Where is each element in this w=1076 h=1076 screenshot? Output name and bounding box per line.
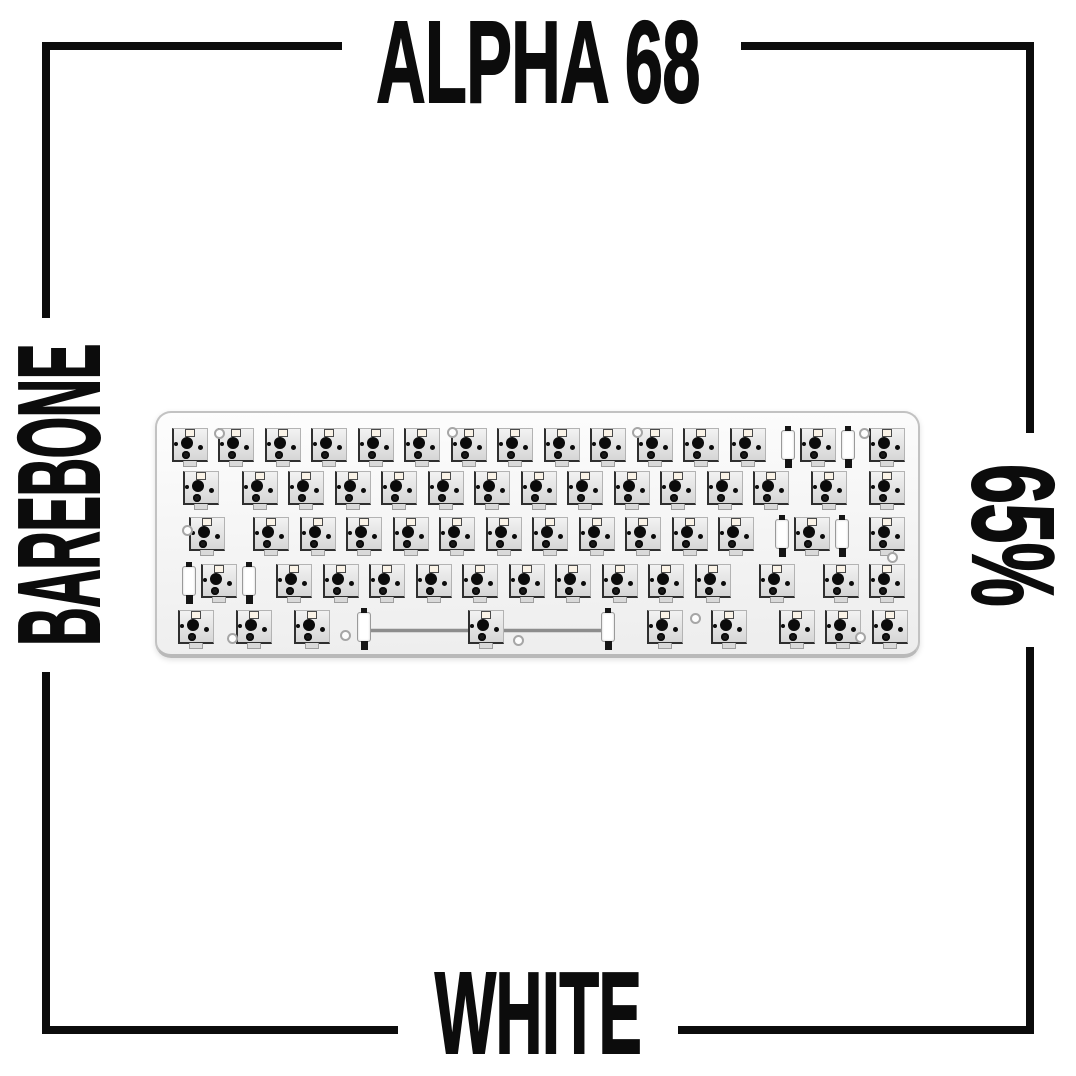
switch-socket [294, 610, 330, 644]
pin-hole [721, 581, 726, 586]
switch-stem-hole [344, 480, 356, 492]
pin-hole [720, 531, 724, 535]
switch-socket [462, 564, 498, 598]
switch-stem-hole [460, 437, 472, 449]
hotswap-socket-hole [519, 587, 527, 595]
hotswap-socket-hole [496, 540, 504, 548]
switch-socket [779, 610, 815, 644]
hotswap-socket-hole [833, 587, 841, 595]
switch-socket [189, 517, 225, 551]
pin-hole [592, 442, 596, 446]
pin-hole [238, 624, 242, 628]
switch-stem-hole [739, 437, 751, 449]
hotswap-socket-hole [657, 633, 665, 641]
hotswap-socket-hole [882, 633, 890, 641]
led-window [627, 472, 637, 480]
pin-hole [500, 488, 505, 493]
switch-stem-hole [692, 437, 704, 449]
switch-socket [823, 564, 859, 598]
switch-stem-hole [599, 437, 611, 449]
pin-hole [337, 485, 341, 489]
led-window [255, 472, 265, 480]
pin-hole [430, 445, 435, 450]
pin-hole [499, 442, 503, 446]
led-window [708, 565, 718, 573]
pin-hole [262, 627, 267, 632]
pin-hole [662, 485, 666, 489]
switch-socket [300, 517, 336, 551]
pin-hole [198, 445, 203, 450]
hotswap-socket-hole [565, 587, 573, 595]
switch-stem-hole [483, 480, 495, 492]
led-window [324, 429, 334, 437]
pin-hole [837, 488, 842, 493]
hotswap-socket-hole [789, 633, 797, 641]
pin-hole [244, 485, 248, 489]
switch-stem-hole [303, 619, 315, 631]
frame-line-left-lower [42, 672, 50, 1034]
switch-socket [869, 428, 905, 462]
switch-stem-hole [657, 573, 669, 585]
stabilizer-clip [242, 566, 256, 596]
led-window [766, 472, 776, 480]
pin-hole [871, 531, 875, 535]
switch-socket [346, 517, 382, 551]
hotswap-socket-hole [717, 494, 725, 502]
led-window [838, 611, 848, 619]
switch-stem-hole [623, 480, 635, 492]
led-window [638, 518, 648, 526]
led-window [772, 565, 782, 573]
switch-socket [236, 610, 272, 644]
hotswap-socket-hole [531, 494, 539, 502]
pin-hole [494, 627, 499, 632]
switch-socket [648, 564, 684, 598]
pin-hole [761, 578, 765, 582]
pin-hole [663, 445, 668, 450]
led-window [429, 565, 439, 573]
pin-hole [547, 488, 552, 493]
pin-hole [204, 627, 209, 632]
pin-hole [406, 442, 410, 446]
pin-hole [407, 488, 412, 493]
pin-hole [279, 534, 284, 539]
led-window [603, 429, 613, 437]
pin-hole [337, 445, 342, 450]
hotswap-socket-hole [461, 451, 469, 459]
product-poster: ALPHA 68 BAREBONE 65% WHITE [0, 0, 1076, 1076]
switch-socket [276, 564, 312, 598]
pin-hole [826, 445, 831, 450]
switch-socket [811, 471, 847, 505]
hotswap-socket-hole [182, 451, 190, 459]
pin-hole [534, 531, 538, 535]
led-window [441, 472, 451, 480]
led-window [743, 429, 753, 437]
led-window [196, 472, 206, 480]
pin-hole [535, 581, 540, 586]
switch-stem-hole [832, 573, 844, 585]
switch-socket [647, 610, 683, 644]
pin-hole [755, 485, 759, 489]
switch-socket [602, 564, 638, 598]
switch-socket [625, 517, 661, 551]
pin-hole [827, 624, 831, 628]
switch-stem-hole [541, 526, 553, 538]
pin-hole [874, 624, 878, 628]
pin-hole [383, 485, 387, 489]
hotswap-socket-hole [426, 587, 434, 595]
switch-stem-hole [425, 573, 437, 585]
pin-hole [871, 578, 875, 582]
pin-hole [244, 445, 249, 450]
pin-hole [627, 531, 631, 535]
switch-socket [869, 517, 905, 551]
pin-hole [604, 578, 608, 582]
led-window [813, 429, 823, 437]
hotswap-socket-hole [600, 451, 608, 459]
pin-hole [849, 581, 854, 586]
switch-socket [439, 517, 475, 551]
pin-hole [278, 578, 282, 582]
switch-stem-hole [669, 480, 681, 492]
hotswap-socket-hole [763, 494, 771, 502]
pin-hole [268, 488, 273, 493]
switch-socket [567, 471, 603, 505]
led-window [214, 565, 224, 573]
pin-hole [546, 442, 550, 446]
led-window [289, 565, 299, 573]
led-window [510, 429, 520, 437]
switch-stem-hole [320, 437, 332, 449]
switch-stem-hole [181, 437, 193, 449]
switch-socket [323, 564, 359, 598]
pin-hole [813, 485, 817, 489]
pin-hole [313, 442, 317, 446]
hotswap-socket-hole [728, 540, 736, 548]
hotswap-socket-hole [246, 633, 254, 641]
frame-line-bottom-right [678, 1026, 1034, 1034]
switch-stem-hole [210, 573, 222, 585]
switch-stem-hole [245, 619, 257, 631]
switch-stem-hole [297, 480, 309, 492]
switch-socket [242, 471, 278, 505]
pin-hole [372, 534, 377, 539]
led-window [394, 472, 404, 480]
switch-stem-hole [881, 619, 893, 631]
led-window [696, 429, 706, 437]
hotswap-socket-hole [647, 451, 655, 459]
pin-hole [581, 581, 586, 586]
screw-hole [447, 427, 458, 438]
switch-socket [369, 564, 405, 598]
pin-hole [488, 581, 493, 586]
pin-hole [384, 445, 389, 450]
switch-socket [718, 517, 754, 551]
switch-stem-hole [656, 619, 668, 631]
led-window [452, 518, 462, 526]
hotswap-socket-hole [345, 494, 353, 502]
switch-stem-hole [192, 480, 204, 492]
switch-stem-hole [878, 480, 890, 492]
pin-hole [781, 624, 785, 628]
led-window [568, 565, 578, 573]
hotswap-socket-hole [835, 633, 843, 641]
led-window [724, 611, 734, 619]
switch-socket [579, 517, 615, 551]
led-window [406, 518, 416, 526]
led-window [661, 565, 671, 573]
pin-hole [895, 488, 900, 493]
pin-hole [673, 627, 678, 632]
led-window [885, 611, 895, 619]
hotswap-socket-hole [263, 540, 271, 548]
pin-hole [651, 534, 656, 539]
led-window [882, 472, 892, 480]
pin-hole [220, 442, 224, 446]
switch-socket [555, 564, 591, 598]
switch-stem-hole [878, 573, 890, 585]
led-window [650, 429, 660, 437]
hotswap-socket-hole [449, 540, 457, 548]
hotswap-socket-hole [211, 587, 219, 595]
pin-hole [756, 445, 761, 450]
pin-hole [255, 531, 259, 535]
led-window [348, 472, 358, 480]
hotswap-socket-hole [740, 451, 748, 459]
led-window [336, 565, 346, 573]
switch-stem-hole [332, 573, 344, 585]
switch-stem-hole [646, 437, 658, 449]
hotswap-socket-hole [298, 494, 306, 502]
pin-hole [685, 442, 689, 446]
switch-stem-hole [402, 526, 414, 538]
pin-hole [709, 445, 714, 450]
switch-socket [509, 564, 545, 598]
switch-stem-hole [634, 526, 646, 538]
hotswap-socket-hole [624, 494, 632, 502]
switch-socket [253, 517, 289, 551]
screw-hole [887, 552, 898, 563]
hotswap-socket-hole [310, 540, 318, 548]
pin-hole [871, 485, 875, 489]
pin-hole [227, 581, 232, 586]
switch-socket [416, 564, 452, 598]
screw-hole [859, 428, 870, 439]
switch-socket [660, 471, 696, 505]
switch-stem-hole [530, 480, 542, 492]
pin-hole [488, 531, 492, 535]
pin-hole [732, 442, 736, 446]
switch-socket [288, 471, 324, 505]
switch-stem-hole [820, 480, 832, 492]
pin-hole [215, 534, 220, 539]
led-window [882, 429, 892, 437]
led-window [249, 611, 259, 619]
switch-stem-hole [762, 480, 774, 492]
pin-hole [871, 442, 875, 446]
pin-hole [616, 445, 621, 450]
switch-socket [178, 610, 214, 644]
led-window [731, 518, 741, 526]
led-window [475, 565, 485, 573]
pin-hole [581, 531, 585, 535]
pin-hole [209, 488, 214, 493]
pin-hole [325, 578, 329, 582]
pin-hole [464, 578, 468, 582]
pin-hole [477, 445, 482, 450]
pin-hole [296, 624, 300, 628]
pin-hole [709, 485, 713, 489]
pin-hole [442, 581, 447, 586]
pin-hole [348, 531, 352, 535]
pin-hole [570, 445, 575, 450]
led-window [673, 472, 683, 480]
led-window [882, 565, 892, 573]
hotswap-socket-hole [356, 540, 364, 548]
led-window [481, 611, 491, 619]
switch-socket [711, 610, 747, 644]
led-window [522, 565, 532, 573]
frame-line-bottom-left [42, 1026, 398, 1034]
switch-socket [497, 428, 533, 462]
hotswap-socket-hole [478, 633, 486, 641]
frame-line-right-lower [1026, 647, 1034, 1034]
switch-stem-hole [518, 573, 530, 585]
pin-hole [713, 624, 717, 628]
product-title: ALPHA 68 [376, 4, 700, 120]
hotswap-socket-hole [507, 451, 515, 459]
screw-hole [214, 428, 225, 439]
pin-hole [326, 534, 331, 539]
switch-stem-hole [378, 573, 390, 585]
switch-stem-hole [611, 573, 623, 585]
switch-stem-hole [437, 480, 449, 492]
switch-socket [869, 564, 905, 598]
stabilizer-clip [357, 612, 371, 642]
pin-hole [418, 578, 422, 582]
led-window [307, 611, 317, 619]
switch-stem-hole [198, 526, 210, 538]
pin-hole [395, 531, 399, 535]
led-window [545, 518, 555, 526]
led-window [278, 429, 288, 437]
frame-line-top-right [741, 42, 1034, 50]
stabilizer-clip [835, 519, 849, 549]
switch-socket [730, 428, 766, 462]
hotswap-socket-hole [577, 494, 585, 502]
switch-stem-hole [262, 526, 274, 538]
led-window [534, 472, 544, 480]
switch-stem-hole [274, 437, 286, 449]
pin-hole [796, 531, 800, 535]
hotswap-socket-hole [193, 494, 201, 502]
pin-hole [802, 442, 806, 446]
screw-hole [513, 635, 524, 646]
hotswap-socket-hole [693, 451, 701, 459]
switch-socket [172, 428, 208, 462]
pin-hole [649, 624, 653, 628]
switch-socket [672, 517, 708, 551]
hotswap-socket-hole [721, 633, 729, 641]
switch-socket [800, 428, 836, 462]
hotswap-socket-hole [879, 540, 887, 548]
screw-hole [632, 427, 643, 438]
switch-stem-hole [576, 480, 588, 492]
switch-socket [695, 564, 731, 598]
switch-stem-hole [285, 573, 297, 585]
screw-hole [227, 633, 238, 644]
switch-stem-hole [716, 480, 728, 492]
hotswap-socket-hole [188, 633, 196, 641]
switch-stem-hole [413, 437, 425, 449]
switch-socket [335, 471, 371, 505]
pin-hole [523, 445, 528, 450]
led-window [301, 472, 311, 480]
led-window [557, 429, 567, 437]
pin-hole [267, 442, 271, 446]
switch-socket [614, 471, 650, 505]
switch-stem-hole [727, 526, 739, 538]
pin-hole [733, 488, 738, 493]
switch-stem-hole [471, 573, 483, 585]
pin-hole [593, 488, 598, 493]
hotswap-socket-hole [804, 540, 812, 548]
switch-socket [753, 471, 789, 505]
led-window [499, 518, 509, 526]
pin-hole [851, 627, 856, 632]
led-window [266, 518, 276, 526]
screw-hole [182, 525, 193, 536]
switch-socket [759, 564, 795, 598]
switch-socket [428, 471, 464, 505]
switch-socket [358, 428, 394, 462]
pin-hole [395, 581, 400, 586]
switch-socket [381, 471, 417, 505]
pin-hole [185, 485, 189, 489]
switch-stem-hole [768, 573, 780, 585]
pin-hole [686, 488, 691, 493]
switch-stem-hole [495, 526, 507, 538]
pin-hole [557, 578, 561, 582]
pin-hole [569, 485, 573, 489]
pin-hole [650, 578, 654, 582]
switch-socket [532, 517, 568, 551]
pin-hole [476, 485, 480, 489]
stabilizer-clip [775, 519, 789, 549]
hotswap-socket-hole [589, 540, 597, 548]
stabilizer-clip [182, 566, 196, 596]
switch-stem-hole [553, 437, 565, 449]
switch-stem-hole [506, 437, 518, 449]
switch-socket [265, 428, 301, 462]
hotswap-socket-hole [682, 540, 690, 548]
side-label-barebone: BAREBONE [1, 344, 117, 646]
switch-stem-hole [309, 526, 321, 538]
pin-hole [640, 488, 645, 493]
led-window [464, 429, 474, 437]
led-window [720, 472, 730, 480]
pin-hole [895, 445, 900, 450]
pin-hole [616, 485, 620, 489]
led-window [202, 518, 212, 526]
hotswap-socket-hole [670, 494, 678, 502]
switch-socket [486, 517, 522, 551]
led-window [231, 429, 241, 437]
hotswap-socket-hole [554, 451, 562, 459]
bottom-label-color: WHITE [435, 955, 641, 1071]
hotswap-socket-hole [414, 451, 422, 459]
